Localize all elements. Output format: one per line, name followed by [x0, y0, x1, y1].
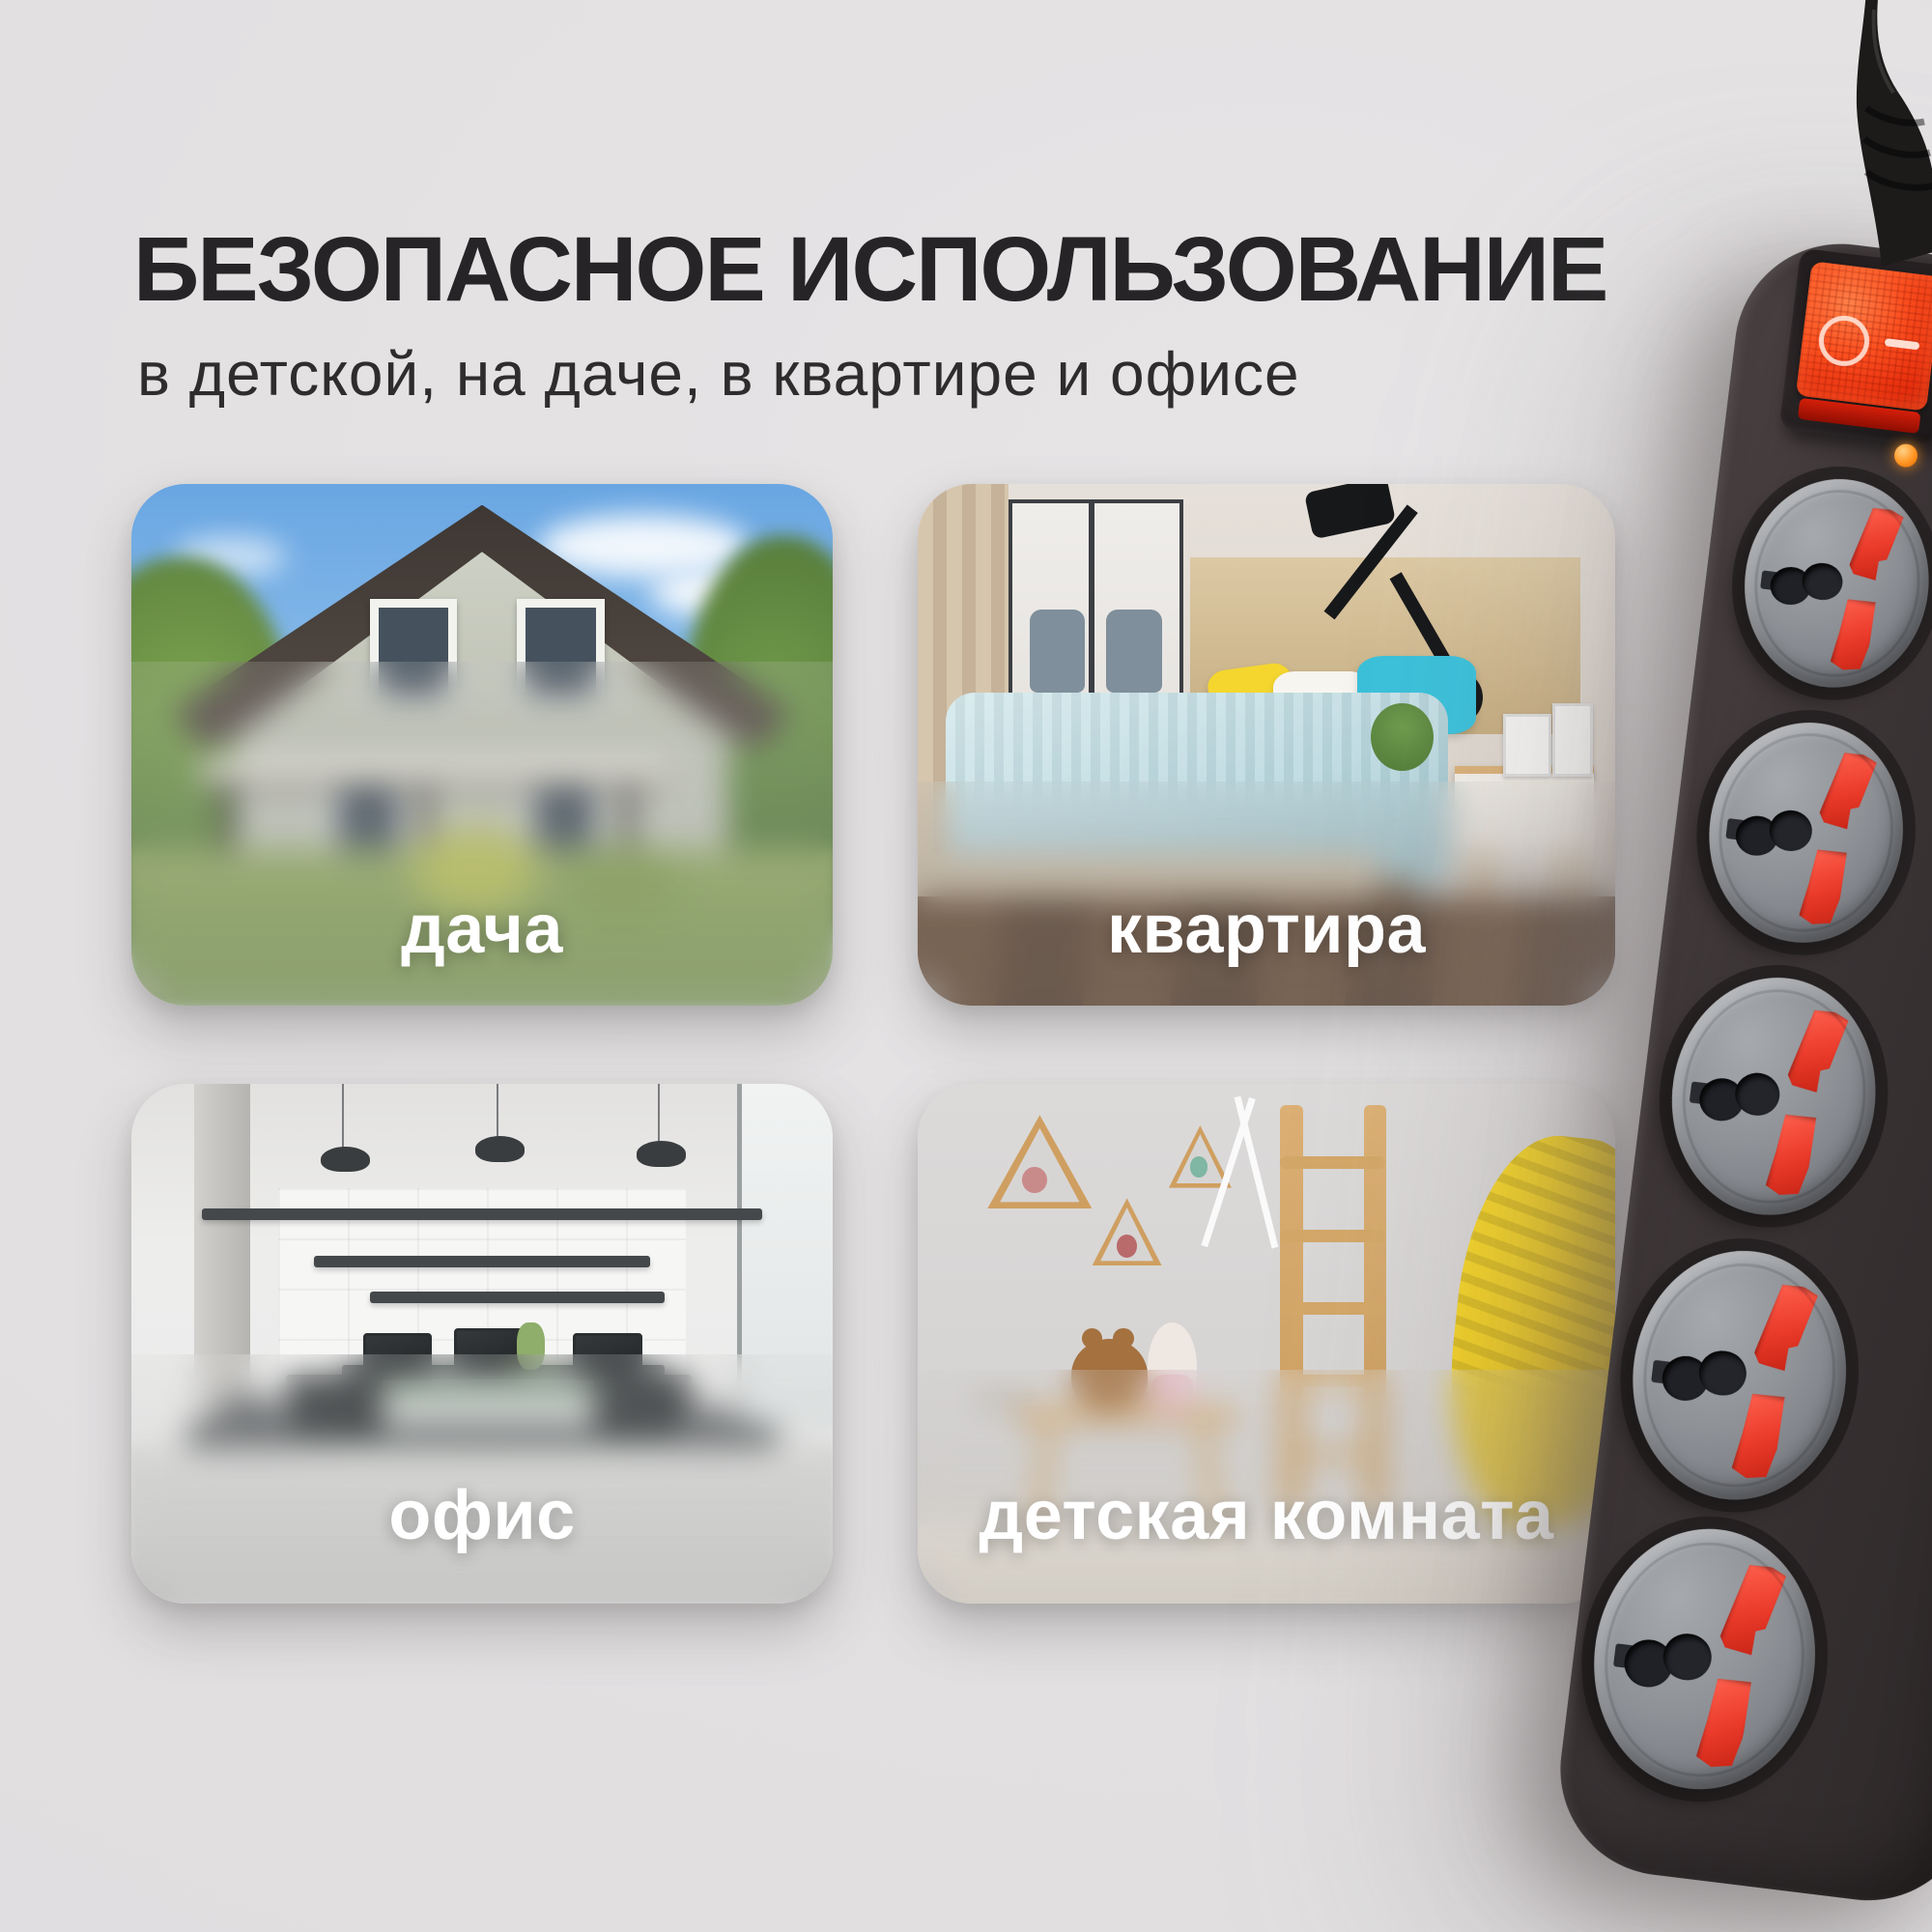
socket-flat-slot	[1817, 748, 1878, 833]
socket-round-pin-hole	[1733, 1070, 1782, 1119]
dacha-photo: дача	[131, 484, 833, 1006]
socket-round-pin-hole	[1699, 1078, 1745, 1122]
socket-pin-notch	[1651, 1360, 1672, 1384]
toy	[1190, 1156, 1208, 1178]
card-label-office: офис	[131, 1476, 833, 1555]
page-subtitle: в детской, на даче, в квартире и офисе	[137, 340, 1300, 408]
socket-1	[1733, 469, 1932, 698]
socket-2	[1697, 712, 1916, 954]
ladder-rung	[1280, 1302, 1384, 1315]
photo-frame	[1552, 703, 1593, 777]
socket-flat-slot	[1785, 1005, 1850, 1096]
socket-5	[1579, 1517, 1830, 1803]
chair	[1030, 610, 1086, 693]
page-title: БЕЗОПАСНОЕ ИСПОЛЬЗОВАНИЕ	[133, 224, 1606, 316]
socket-flat-slot	[1765, 1110, 1820, 1200]
socket-flat-slot	[1694, 1674, 1754, 1772]
socket-flat-slot	[1730, 1390, 1788, 1484]
socket-round-pin-hole	[1661, 1631, 1715, 1683]
card-kids-room: детская комната	[918, 1084, 1615, 1604]
socket-round-pin-hole	[1696, 1349, 1748, 1399]
socket-4	[1619, 1238, 1861, 1512]
linear-light	[370, 1292, 665, 1303]
card-label-kids-room: детская комната	[918, 1476, 1615, 1555]
pendant-lamp	[637, 1141, 686, 1167]
linear-light	[202, 1208, 763, 1220]
socket-pin-notch	[1725, 818, 1745, 840]
pendant-lamp	[475, 1136, 525, 1162]
apartment-photo: квартира	[918, 484, 1615, 1006]
socket-round-pin-hole	[1767, 809, 1814, 853]
socket-round-pin-hole	[1662, 1356, 1709, 1402]
photo-frame	[1503, 714, 1550, 777]
socket-pin-notch	[1613, 1643, 1635, 1669]
potted-plant	[1371, 703, 1434, 771]
card-apartment: квартира	[918, 484, 1615, 1006]
socket-round-pin-hole	[1800, 560, 1844, 603]
office-photo: офис	[131, 1084, 833, 1604]
product-infographic: БЕЗОПАСНОЕ ИСПОЛЬЗОВАНИЕ в детской, на д…	[0, 0, 1932, 1932]
switch-off-symbol	[1816, 313, 1872, 369]
chair	[1106, 610, 1162, 693]
power-switch-rocker	[1796, 261, 1932, 412]
linear-light	[314, 1256, 650, 1267]
pendant-lamp	[321, 1147, 370, 1173]
toy	[1022, 1167, 1046, 1193]
socket-flat-slot	[1829, 595, 1878, 673]
card-label-dacha: дача	[131, 890, 833, 969]
socket-round-pin-hole	[1770, 567, 1810, 606]
socket-round-pin-hole	[1624, 1639, 1673, 1687]
switch-on-symbol	[1885, 338, 1920, 350]
card-office: офис	[131, 1084, 833, 1604]
kids-room-photo: детская комната	[918, 1084, 1615, 1604]
socket-flat-slot	[1717, 1558, 1787, 1659]
card-dacha: дача	[131, 484, 833, 1006]
ladder-rung	[1280, 1156, 1384, 1169]
ladder-rung	[1280, 1230, 1384, 1242]
socket-pin-notch	[1690, 1081, 1710, 1104]
card-label-apartment: квартира	[918, 890, 1615, 969]
socket-3	[1659, 966, 1889, 1227]
power-indicator-light	[1893, 442, 1919, 469]
socket-pin-notch	[1760, 570, 1778, 590]
socket-flat-slot	[1798, 845, 1850, 928]
socket-flat-slot	[1751, 1279, 1819, 1375]
socket-round-pin-hole	[1736, 815, 1779, 856]
socket-flat-slot	[1847, 502, 1905, 582]
power-cable	[1824, 0, 1932, 282]
